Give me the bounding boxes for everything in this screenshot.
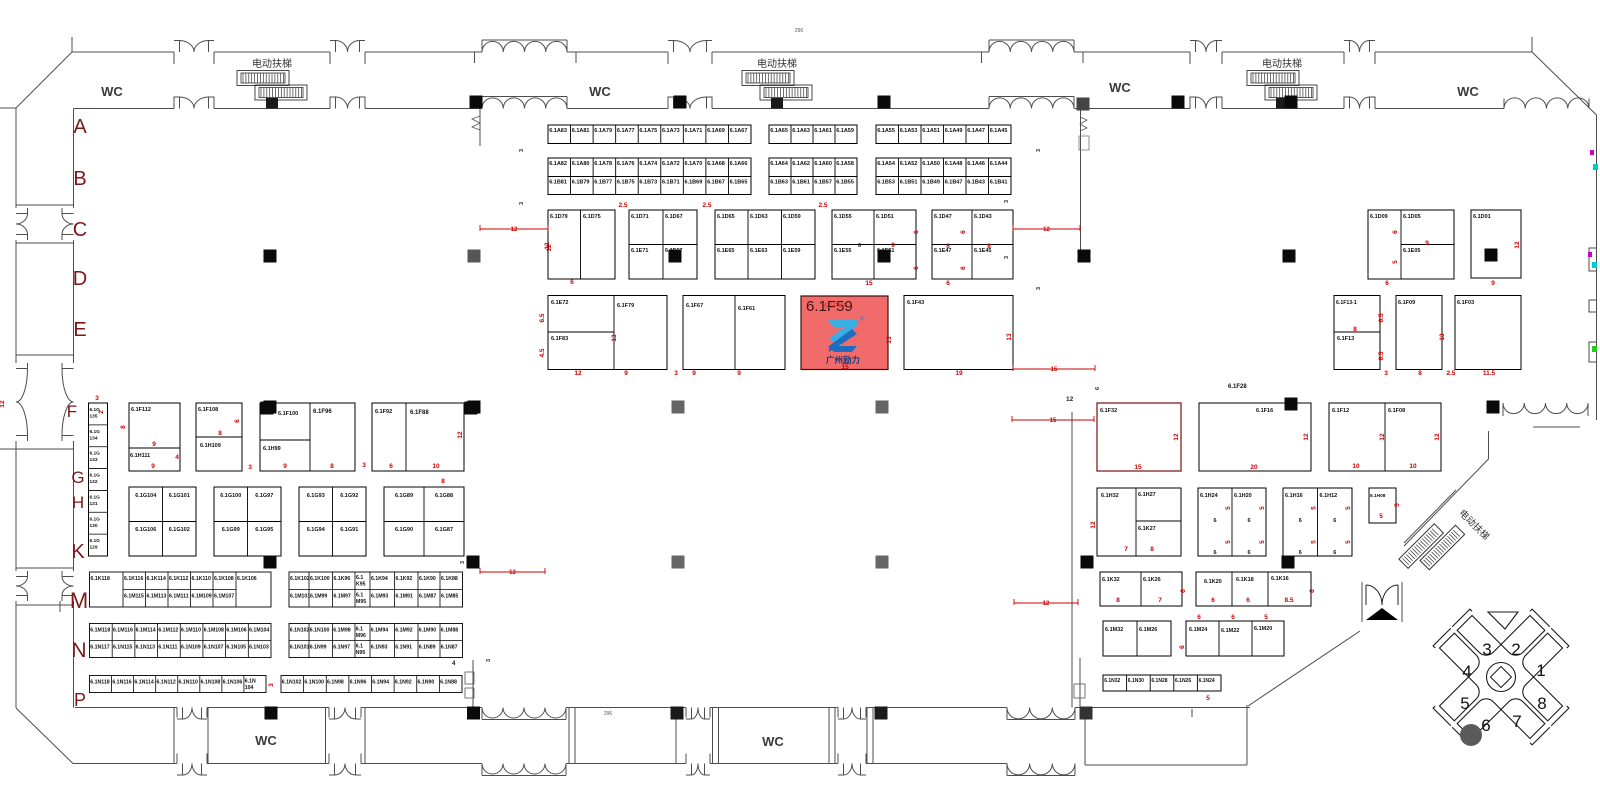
svg-text:6.1B47: 6.1B47 <box>945 180 963 186</box>
svg-text:6.1G94: 6.1G94 <box>307 527 326 533</box>
svg-text:6.1G102: 6.1G102 <box>169 527 190 533</box>
svg-text:6.1A50: 6.1A50 <box>922 161 940 167</box>
svg-text:8: 8 <box>1353 326 1357 333</box>
svg-text:6.5: 6.5 <box>539 313 546 322</box>
svg-text:6.1A79: 6.1A79 <box>594 128 612 134</box>
svg-text:19: 19 <box>955 370 963 377</box>
svg-text:6.1M87: 6.1M87 <box>419 594 436 600</box>
svg-text:6.1A66: 6.1A66 <box>730 161 748 167</box>
svg-text:M95: M95 <box>356 599 366 605</box>
svg-text:13: 13 <box>1006 333 1013 341</box>
svg-text:2: 2 <box>98 410 105 414</box>
svg-text:2.5: 2.5 <box>702 202 711 209</box>
svg-text:6.1A55: 6.1A55 <box>877 128 895 134</box>
svg-text:6.1F12: 6.1F12 <box>1332 408 1349 414</box>
svg-text:6.1A68: 6.1A68 <box>707 161 725 167</box>
svg-text:6.1A80: 6.1A80 <box>572 161 590 167</box>
svg-text:6.1E65: 6.1E65 <box>717 248 734 254</box>
svg-text:12: 12 <box>1043 227 1050 233</box>
svg-text:6.1A70: 6.1A70 <box>685 161 703 167</box>
svg-text:M96: M96 <box>356 633 366 639</box>
svg-text:3: 3 <box>460 561 466 564</box>
svg-text:6.1D01: 6.1D01 <box>1473 214 1491 220</box>
svg-text:6: 6 <box>1392 230 1399 234</box>
svg-text:12: 12 <box>509 570 516 576</box>
svg-text:6.1K18: 6.1K18 <box>1236 577 1254 583</box>
svg-text:6: 6 <box>858 243 861 249</box>
svg-text:6: 6 <box>1385 280 1389 287</box>
svg-text:2.5: 2.5 <box>1446 370 1455 377</box>
svg-text:6: 6 <box>1180 589 1187 593</box>
svg-text:H: H <box>72 493 84 512</box>
svg-text:6.1N88: 6.1N88 <box>440 680 457 686</box>
svg-text:WC: WC <box>101 84 123 99</box>
svg-text:6.1A67: 6.1A67 <box>730 128 748 134</box>
svg-text:6.1M118: 6.1M118 <box>90 628 110 634</box>
svg-text:6.1G87: 6.1G87 <box>435 527 453 533</box>
svg-text:6: 6 <box>1333 518 1336 524</box>
svg-text:11.5: 11.5 <box>1483 370 1496 377</box>
svg-text:6.1B61: 6.1B61 <box>792 180 810 186</box>
svg-text:6: 6 <box>1299 550 1302 556</box>
svg-text:2.5: 2.5 <box>818 202 827 209</box>
svg-text:12: 12 <box>1434 433 1441 441</box>
svg-text:6.1M24: 6.1M24 <box>1189 627 1208 633</box>
svg-text:6.1F112: 6.1F112 <box>131 407 151 413</box>
svg-text:6.1N114: 6.1N114 <box>134 680 153 686</box>
svg-text:6.1: 6.1 <box>356 644 363 650</box>
svg-text:6.1N101: 6.1N101 <box>290 645 310 651</box>
svg-text:10: 10 <box>1409 463 1417 470</box>
svg-text:6.1A49: 6.1A49 <box>945 128 963 134</box>
svg-text:6.1M97: 6.1M97 <box>334 594 351 600</box>
svg-text:6.1N102: 6.1N102 <box>282 680 302 686</box>
svg-text:6.1G97: 6.1G97 <box>255 493 273 499</box>
svg-text:6.1H24: 6.1H24 <box>1200 493 1219 499</box>
svg-text:6.1B65: 6.1B65 <box>730 180 748 186</box>
svg-text:12: 12 <box>1043 601 1050 607</box>
svg-text:9: 9 <box>624 370 628 377</box>
svg-text:6.1N117: 6.1N117 <box>90 645 109 651</box>
svg-text:6.1D71: 6.1D71 <box>631 214 649 220</box>
svg-text:6.1A47: 6.1A47 <box>967 128 985 134</box>
svg-text:7: 7 <box>1124 546 1128 553</box>
svg-text:6.1F88: 6.1F88 <box>410 410 429 416</box>
svg-text:6: 6 <box>1333 550 1336 556</box>
svg-text:6.1G92: 6.1G92 <box>340 493 358 499</box>
svg-text:6.1F108: 6.1F108 <box>198 407 218 413</box>
svg-text:6.1M106: 6.1M106 <box>226 628 246 634</box>
svg-text:12: 12 <box>1066 396 1074 403</box>
svg-text:12: 12 <box>0 400 6 408</box>
svg-text:K95: K95 <box>356 582 366 588</box>
svg-text:15: 15 <box>865 280 873 287</box>
svg-text:6.1B41: 6.1B41 <box>990 180 1008 186</box>
svg-text:6.1M115: 6.1M115 <box>124 594 144 600</box>
svg-text:6.1B71: 6.1B71 <box>662 180 680 186</box>
svg-text:6.1B81: 6.1B81 <box>549 180 567 186</box>
svg-text:6.1M26: 6.1M26 <box>1139 627 1157 633</box>
svg-text:6.1F83: 6.1F83 <box>551 336 568 342</box>
svg-text:133: 133 <box>90 457 98 463</box>
svg-text:1: 1 <box>1536 661 1545 680</box>
svg-text:6.1K16: 6.1K16 <box>1271 576 1289 582</box>
svg-text:6.1F03: 6.1F03 <box>1457 300 1474 306</box>
svg-text:WC: WC <box>762 734 784 749</box>
svg-text:5: 5 <box>1264 614 1268 621</box>
svg-text:4: 4 <box>175 454 179 461</box>
svg-text:6: 6 <box>1299 518 1302 524</box>
svg-text:6.1: 6.1 <box>356 593 363 599</box>
svg-text:5: 5 <box>1345 506 1352 510</box>
svg-text:6.1H99: 6.1H99 <box>263 446 281 452</box>
svg-text:6.1A58: 6.1A58 <box>836 161 854 167</box>
svg-text:6.1A45: 6.1A45 <box>990 128 1008 134</box>
svg-text:15: 15 <box>1134 464 1142 471</box>
svg-text:6.1B43: 6.1B43 <box>967 180 985 186</box>
svg-text:6.1N103: 6.1N103 <box>249 645 269 651</box>
svg-text:6.1B73: 6.1B73 <box>639 180 657 186</box>
svg-text:6.1D43: 6.1D43 <box>974 214 992 220</box>
svg-text:130: 130 <box>90 523 98 529</box>
svg-text:6.1H20: 6.1H20 <box>1234 493 1252 499</box>
svg-text:5: 5 <box>1345 540 1352 544</box>
svg-text:5: 5 <box>1392 260 1399 264</box>
svg-text:6.1N109: 6.1N109 <box>181 645 201 651</box>
svg-text:6.1N110: 6.1N110 <box>179 680 198 686</box>
svg-text:6: 6 <box>1179 645 1186 649</box>
svg-text:3: 3 <box>519 149 525 152</box>
svg-text:6.1A65: 6.1A65 <box>770 128 788 134</box>
svg-text:6.1A44: 6.1A44 <box>990 161 1009 167</box>
svg-text:6.1E63: 6.1E63 <box>750 248 767 254</box>
svg-text:6.1F61: 6.1F61 <box>738 306 755 312</box>
svg-text:WC: WC <box>255 733 277 748</box>
svg-text:6.1G95: 6.1G95 <box>255 527 273 533</box>
svg-text:6.1D51: 6.1D51 <box>876 214 894 220</box>
svg-text:6.5: 6.5 <box>1378 351 1385 360</box>
svg-text:6.1K108: 6.1K108 <box>214 576 234 582</box>
svg-text:6.1F79: 6.1F79 <box>617 303 634 309</box>
svg-text:8.5: 8.5 <box>1284 597 1293 604</box>
svg-text:6.1A74: 6.1A74 <box>639 161 658 167</box>
svg-text:6.1D47: 6.1D47 <box>934 214 952 220</box>
svg-text:6.1G: 6.1G <box>90 473 101 479</box>
svg-text:8: 8 <box>120 425 127 429</box>
svg-text:D: D <box>73 268 87 290</box>
svg-text:7: 7 <box>1158 597 1162 604</box>
svg-text:6.1A69: 6.1A69 <box>707 128 725 134</box>
svg-text:6.1F08: 6.1F08 <box>1388 408 1405 414</box>
svg-text:6: 6 <box>1213 518 1216 524</box>
svg-text:5: 5 <box>1379 513 1383 520</box>
svg-text:3: 3 <box>1004 256 1010 259</box>
svg-text:6.1M99: 6.1M99 <box>310 594 327 600</box>
svg-text:3: 3 <box>95 395 99 402</box>
svg-text:8: 8 <box>1116 597 1120 604</box>
svg-text:6.1N96: 6.1N96 <box>350 680 367 686</box>
svg-text:6.1G89: 6.1G89 <box>395 493 413 499</box>
svg-text:10: 10 <box>432 463 440 470</box>
svg-text:6: 6 <box>1211 597 1215 604</box>
svg-text:6.1A54: 6.1A54 <box>877 161 896 167</box>
svg-text:3: 3 <box>362 462 366 469</box>
svg-text:6.1M108: 6.1M108 <box>204 628 224 634</box>
svg-text:6.1K100: 6.1K100 <box>310 576 330 582</box>
svg-text:C: C <box>73 219 87 241</box>
svg-text:9: 9 <box>151 463 155 470</box>
svg-text:8: 8 <box>441 478 445 485</box>
svg-text:®: ® <box>860 316 865 323</box>
svg-text:6: 6 <box>913 230 920 234</box>
svg-text:6.1K96: 6.1K96 <box>334 576 351 582</box>
svg-text:6.1A71: 6.1A71 <box>685 128 703 134</box>
svg-text:9: 9 <box>1425 240 1429 247</box>
svg-text:8: 8 <box>1537 694 1546 713</box>
svg-text:6.1A63: 6.1A63 <box>792 128 810 134</box>
svg-text:6.1K118: 6.1K118 <box>91 576 110 582</box>
svg-text:6.1F13: 6.1F13 <box>1337 336 1354 342</box>
svg-text:6.1H08: 6.1H08 <box>1370 493 1386 499</box>
svg-text:3: 3 <box>1036 287 1042 290</box>
svg-text:4: 4 <box>1462 662 1471 681</box>
svg-text:9: 9 <box>152 441 156 448</box>
svg-text:6.1M92: 6.1M92 <box>395 628 412 634</box>
svg-text:135: 135 <box>90 414 98 420</box>
svg-text:电动扶梯: 电动扶梯 <box>1262 57 1302 70</box>
svg-text:6.1G88: 6.1G88 <box>435 493 453 499</box>
svg-text:B: B <box>73 168 86 190</box>
svg-text:6.1N32: 6.1N32 <box>1104 678 1120 684</box>
svg-text:6.1A64: 6.1A64 <box>770 161 789 167</box>
svg-text:6.1D55: 6.1D55 <box>834 214 852 220</box>
svg-text:WC: WC <box>589 84 611 99</box>
svg-text:5: 5 <box>1259 540 1266 544</box>
svg-text:6.1A72: 6.1A72 <box>662 161 680 167</box>
svg-text:6.1B53: 6.1B53 <box>877 180 895 186</box>
svg-text:6.1B77: 6.1B77 <box>594 180 612 186</box>
svg-text:9: 9 <box>692 370 696 377</box>
svg-text:6.1G104: 6.1G104 <box>135 493 157 499</box>
svg-text:6.1A75: 6.1A75 <box>639 128 657 134</box>
svg-text:6.1A83: 6.1A83 <box>549 128 567 134</box>
svg-text:15: 15 <box>1050 418 1057 424</box>
svg-text:2.5: 2.5 <box>618 202 627 209</box>
svg-text:6.1: 6.1 <box>356 575 363 581</box>
svg-text:6.1E55: 6.1E55 <box>834 248 851 254</box>
svg-text:6.1D65: 6.1D65 <box>717 214 735 220</box>
svg-text:6.1N94: 6.1N94 <box>372 680 389 686</box>
svg-text:6.1M107: 6.1M107 <box>214 594 234 600</box>
svg-text:3: 3 <box>1384 370 1388 377</box>
svg-text:296: 296 <box>604 711 613 717</box>
svg-text:6.1M114: 6.1M114 <box>136 628 156 634</box>
svg-text:6.1K94: 6.1K94 <box>371 576 388 582</box>
svg-text:6.1N: 6.1N <box>245 679 256 685</box>
svg-text:6.1N113: 6.1N113 <box>136 645 155 651</box>
svg-text:6.1H16: 6.1H16 <box>1285 493 1303 499</box>
svg-text:6.1K102: 6.1K102 <box>290 576 310 582</box>
svg-text:13: 13 <box>886 336 893 344</box>
svg-text:6.1M94: 6.1M94 <box>371 628 388 634</box>
svg-text:104: 104 <box>245 685 254 691</box>
svg-text:6.1K26: 6.1K26 <box>1143 577 1161 583</box>
svg-text:WC: WC <box>1457 84 1479 99</box>
svg-text:6.1F13-1: 6.1F13-1 <box>1336 300 1357 306</box>
svg-text:6.1M91: 6.1M91 <box>396 594 413 600</box>
svg-text:6: 6 <box>960 266 967 270</box>
svg-text:6: 6 <box>1095 387 1101 390</box>
svg-text:6.1M104: 6.1M104 <box>249 628 269 634</box>
svg-text:6.1A48: 6.1A48 <box>945 161 963 167</box>
svg-text:6.1A53: 6.1A53 <box>900 128 918 134</box>
svg-text:6.1B79: 6.1B79 <box>572 180 590 186</box>
svg-text:6.1F09: 6.1F09 <box>1398 300 1415 306</box>
svg-text:6.1F32: 6.1F32 <box>1100 408 1117 414</box>
svg-text:5: 5 <box>1206 695 1210 702</box>
svg-text:132: 132 <box>90 479 98 485</box>
svg-text:6.1N111: 6.1N111 <box>158 645 177 651</box>
svg-text:6.1N116: 6.1N116 <box>112 680 131 686</box>
svg-text:6.1G: 6.1G <box>90 538 101 544</box>
svg-text:6.1E05: 6.1E05 <box>1403 248 1420 254</box>
svg-text:6.1G: 6.1G <box>90 429 101 435</box>
svg-text:3: 3 <box>1036 149 1042 152</box>
svg-text:3: 3 <box>248 464 252 471</box>
svg-text:12: 12 <box>544 242 551 250</box>
svg-text:6.1A46: 6.1A46 <box>967 161 985 167</box>
svg-text:8: 8 <box>330 463 334 470</box>
svg-text:6.1N105: 6.1N105 <box>226 645 246 651</box>
svg-text:6: 6 <box>389 463 393 470</box>
svg-text:6.1H27: 6.1H27 <box>1138 492 1156 498</box>
svg-text:3: 3 <box>268 683 275 687</box>
svg-text:6: 6 <box>570 279 574 286</box>
svg-text:6.1N99: 6.1N99 <box>310 645 327 651</box>
svg-text:6.1F67: 6.1F67 <box>686 303 703 309</box>
svg-text:6.1K90: 6.1K90 <box>419 576 436 582</box>
svg-text:6.1M22: 6.1M22 <box>1221 628 1239 634</box>
svg-text:5: 5 <box>1225 540 1232 544</box>
svg-text:12: 12 <box>1090 521 1097 529</box>
svg-text:6.1H111: 6.1H111 <box>130 453 150 459</box>
svg-text:12: 12 <box>1303 433 1310 441</box>
svg-text:G: G <box>71 468 84 487</box>
svg-text:6.1G99: 6.1G99 <box>222 527 240 533</box>
svg-text:6.1M93: 6.1M93 <box>371 594 388 600</box>
svg-text:6.1B51: 6.1B51 <box>900 180 918 186</box>
svg-text:6.1K114: 6.1K114 <box>147 576 166 582</box>
svg-text:N: N <box>71 639 86 662</box>
svg-text:6.1N106: 6.1N106 <box>223 680 243 686</box>
svg-text:6.1D63: 6.1D63 <box>750 214 768 220</box>
svg-text:10: 10 <box>1352 463 1360 470</box>
svg-text:9: 9 <box>891 242 895 249</box>
svg-text:E: E <box>73 319 86 341</box>
svg-text:6.1A59: 6.1A59 <box>836 128 854 134</box>
svg-text:6.1M85: 6.1M85 <box>441 594 458 600</box>
svg-text:6.1F92: 6.1F92 <box>375 409 392 415</box>
svg-text:3: 3 <box>486 659 492 662</box>
svg-text:6.1G106: 6.1G106 <box>135 527 156 533</box>
svg-text:6.1H32: 6.1H32 <box>1101 493 1119 499</box>
svg-text:6.1M88: 6.1M88 <box>441 628 458 634</box>
svg-text:6.1D67: 6.1D67 <box>665 214 683 220</box>
svg-text:131: 131 <box>90 501 98 507</box>
svg-text:6.1F100: 6.1F100 <box>278 411 298 417</box>
svg-text:6.1A60: 6.1A60 <box>814 161 832 167</box>
svg-text:6.1M111: 6.1M111 <box>169 594 189 600</box>
svg-text:6: 6 <box>1481 716 1490 735</box>
svg-text:6.1H109: 6.1H109 <box>200 443 221 449</box>
svg-text:6.1E59: 6.1E59 <box>783 248 800 254</box>
svg-text:6.1N92: 6.1N92 <box>395 680 412 686</box>
svg-text:6.1K110: 6.1K110 <box>192 576 211 582</box>
svg-text:N95: N95 <box>356 650 366 656</box>
svg-text:5: 5 <box>1394 503 1401 507</box>
svg-text:F: F <box>67 402 77 421</box>
svg-text:6.1M20: 6.1M20 <box>1254 626 1272 632</box>
svg-text:6.1K20: 6.1K20 <box>1204 579 1222 585</box>
svg-text:6.1N87: 6.1N87 <box>441 645 458 651</box>
svg-text:6.1N28: 6.1N28 <box>1151 678 1167 684</box>
svg-text:7: 7 <box>1512 712 1521 731</box>
svg-text:6.1N107: 6.1N107 <box>204 645 224 651</box>
svg-text:6.1: 6.1 <box>356 627 363 633</box>
svg-text:8: 8 <box>987 243 991 250</box>
svg-text:6.1B57: 6.1B57 <box>814 180 832 186</box>
svg-text:6: 6 <box>913 266 920 270</box>
svg-text:3: 3 <box>674 370 678 377</box>
svg-text:6.1K92: 6.1K92 <box>396 576 413 582</box>
svg-text:6.1E71: 6.1E71 <box>631 248 648 254</box>
svg-text:6.1K112: 6.1K112 <box>169 576 188 582</box>
svg-text:6.1N24: 6.1N24 <box>1199 678 1215 684</box>
svg-text:6.1A81: 6.1A81 <box>572 128 590 134</box>
svg-text:12: 12 <box>1173 433 1180 441</box>
svg-text:6.1M101: 6.1M101 <box>290 594 310 600</box>
svg-text:129: 129 <box>90 545 98 551</box>
svg-text:6.1B67: 6.1B67 <box>707 180 725 186</box>
svg-text:3: 3 <box>1004 200 1010 203</box>
svg-text:6.1M90: 6.1M90 <box>419 628 436 634</box>
svg-text:6.1N89: 6.1N89 <box>419 645 436 651</box>
svg-text:8: 8 <box>1418 370 1422 377</box>
svg-text:5: 5 <box>1259 506 1266 510</box>
svg-text:8: 8 <box>1150 546 1154 553</box>
svg-text:6.1F28: 6.1F28 <box>1228 384 1247 390</box>
svg-text:6.1F59: 6.1F59 <box>824 303 846 310</box>
svg-text:4: 4 <box>452 661 456 667</box>
svg-text:6.1N100: 6.1N100 <box>310 628 330 634</box>
svg-text:12: 12 <box>1514 241 1521 249</box>
svg-text:6.1D79: 6.1D79 <box>550 214 568 220</box>
svg-text:5: 5 <box>1311 540 1318 544</box>
svg-text:3: 3 <box>519 202 525 205</box>
svg-text:6.1N118: 6.1N118 <box>90 680 109 686</box>
svg-text:电动扶梯: 电动扶梯 <box>252 57 292 70</box>
svg-text:6.1N98: 6.1N98 <box>327 680 344 686</box>
svg-text:6.1N112: 6.1N112 <box>156 680 175 686</box>
svg-text:6: 6 <box>234 419 241 423</box>
svg-text:15: 15 <box>841 364 849 371</box>
svg-text:6: 6 <box>946 243 950 250</box>
svg-text:6: 6 <box>1309 589 1316 593</box>
svg-text:9: 9 <box>737 370 741 377</box>
svg-text:296: 296 <box>795 28 804 34</box>
svg-text:K: K <box>71 541 85 563</box>
svg-text:6.1B63: 6.1B63 <box>770 180 788 186</box>
